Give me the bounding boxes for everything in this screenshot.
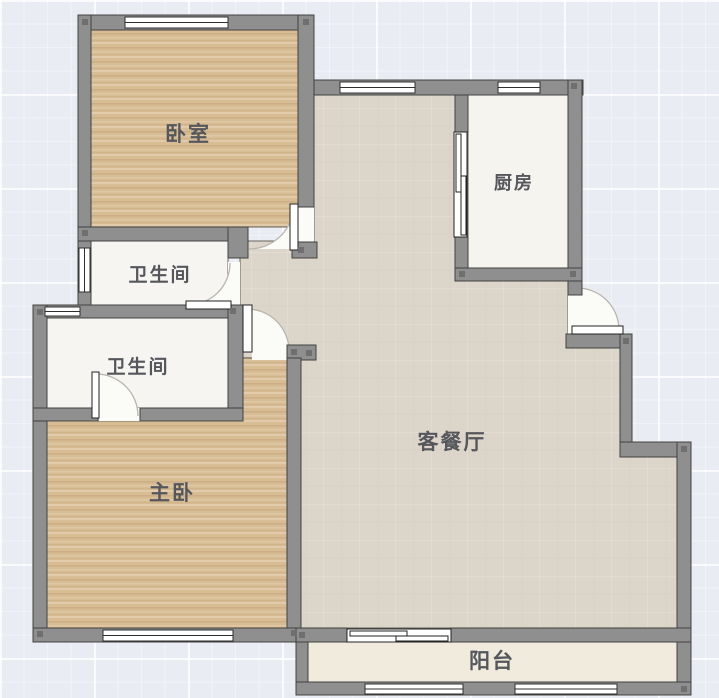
bedroom-door-threshold (298, 207, 314, 242)
bathroom-upper-left-window (79, 248, 90, 292)
kitchen-left-wall-lower (455, 237, 468, 268)
balcony-label: 阳台 (469, 649, 515, 673)
bathroom-lower-bottom-wall-left (33, 408, 98, 421)
kitchen-left-wall-upper (455, 95, 468, 132)
master-bottom-window (103, 630, 233, 641)
master-right-wall (287, 358, 301, 641)
bathroom-lower-bottom-wall-right (140, 408, 243, 421)
entry-door-swing (577, 288, 619, 330)
balcony-sliding-door (347, 629, 451, 642)
kitchen-sliding-door (454, 132, 467, 237)
bathroom-upper-label: 卫生间 (128, 263, 191, 286)
master-bedroom-label: 主卧 (149, 482, 195, 505)
kitchen-top-window (498, 82, 540, 93)
left-wall-lower (33, 305, 47, 641)
living-dining-label: 客餐厅 (418, 430, 487, 454)
master-door-leaf (243, 305, 252, 352)
entry-door-leaf (572, 326, 623, 334)
kitchen-bottom-wall (455, 268, 582, 281)
bedroom-label: 卧室 (165, 122, 211, 146)
bathroom-upper-door-leaf (186, 301, 231, 309)
kitchen-right-wall (568, 80, 582, 295)
floorplan-canvas: 卧室 卫生间 卫生间 主卧 客餐厅 厨房 阳台 (0, 0, 719, 698)
bathroom-lower-door-leaf (92, 372, 99, 418)
balcony-bottom-wall (296, 682, 691, 695)
living-top-window (340, 82, 415, 93)
bedroom-right-wall (298, 15, 314, 207)
bedroom-top-window (125, 17, 228, 28)
bathroom-lower-top-window (45, 307, 80, 316)
living-right-wall-lower (677, 442, 691, 695)
kitchen-label: 厨房 (494, 172, 534, 193)
balcony-top-wall-right (451, 628, 691, 642)
bedroom-bottom-wall (78, 227, 240, 241)
bedroom-bottom-jog-wall (228, 227, 248, 258)
bathroom-lower-right-wall (228, 305, 243, 421)
floorplan-drawing: 卧室 卫生间 卫生间 主卧 客餐厅 厨房 阳台 (0, 0, 719, 698)
bedroom-door-leaf (290, 204, 298, 250)
balcony-window-right (515, 684, 617, 694)
living-right-wall-upper (620, 334, 632, 442)
balcony-window-left (365, 684, 463, 694)
bathroom-lower-label: 卫生间 (106, 355, 169, 378)
